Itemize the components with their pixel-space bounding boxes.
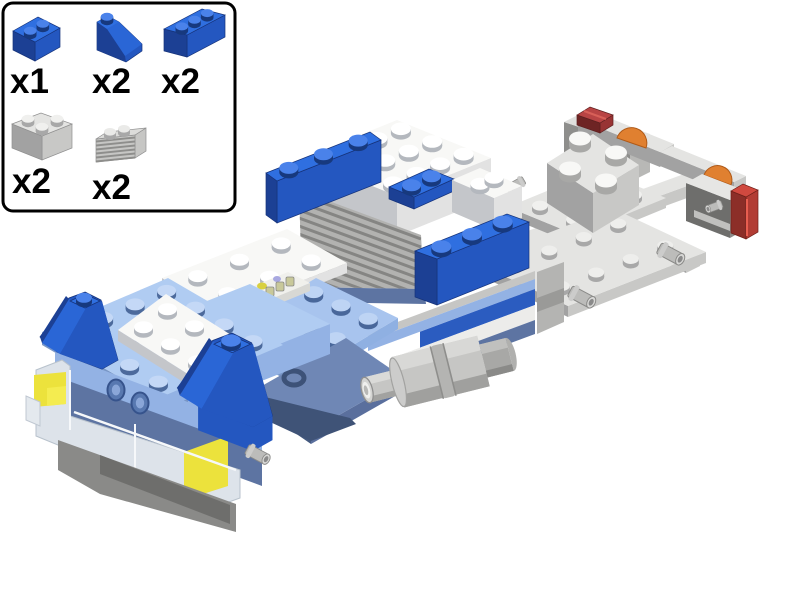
svg-text:x2: x2 (161, 62, 200, 101)
svg-text:x2: x2 (12, 162, 51, 201)
svg-text:x1: x1 (10, 62, 49, 101)
svg-text:x2: x2 (92, 168, 131, 207)
svg-text:x2: x2 (92, 62, 131, 101)
